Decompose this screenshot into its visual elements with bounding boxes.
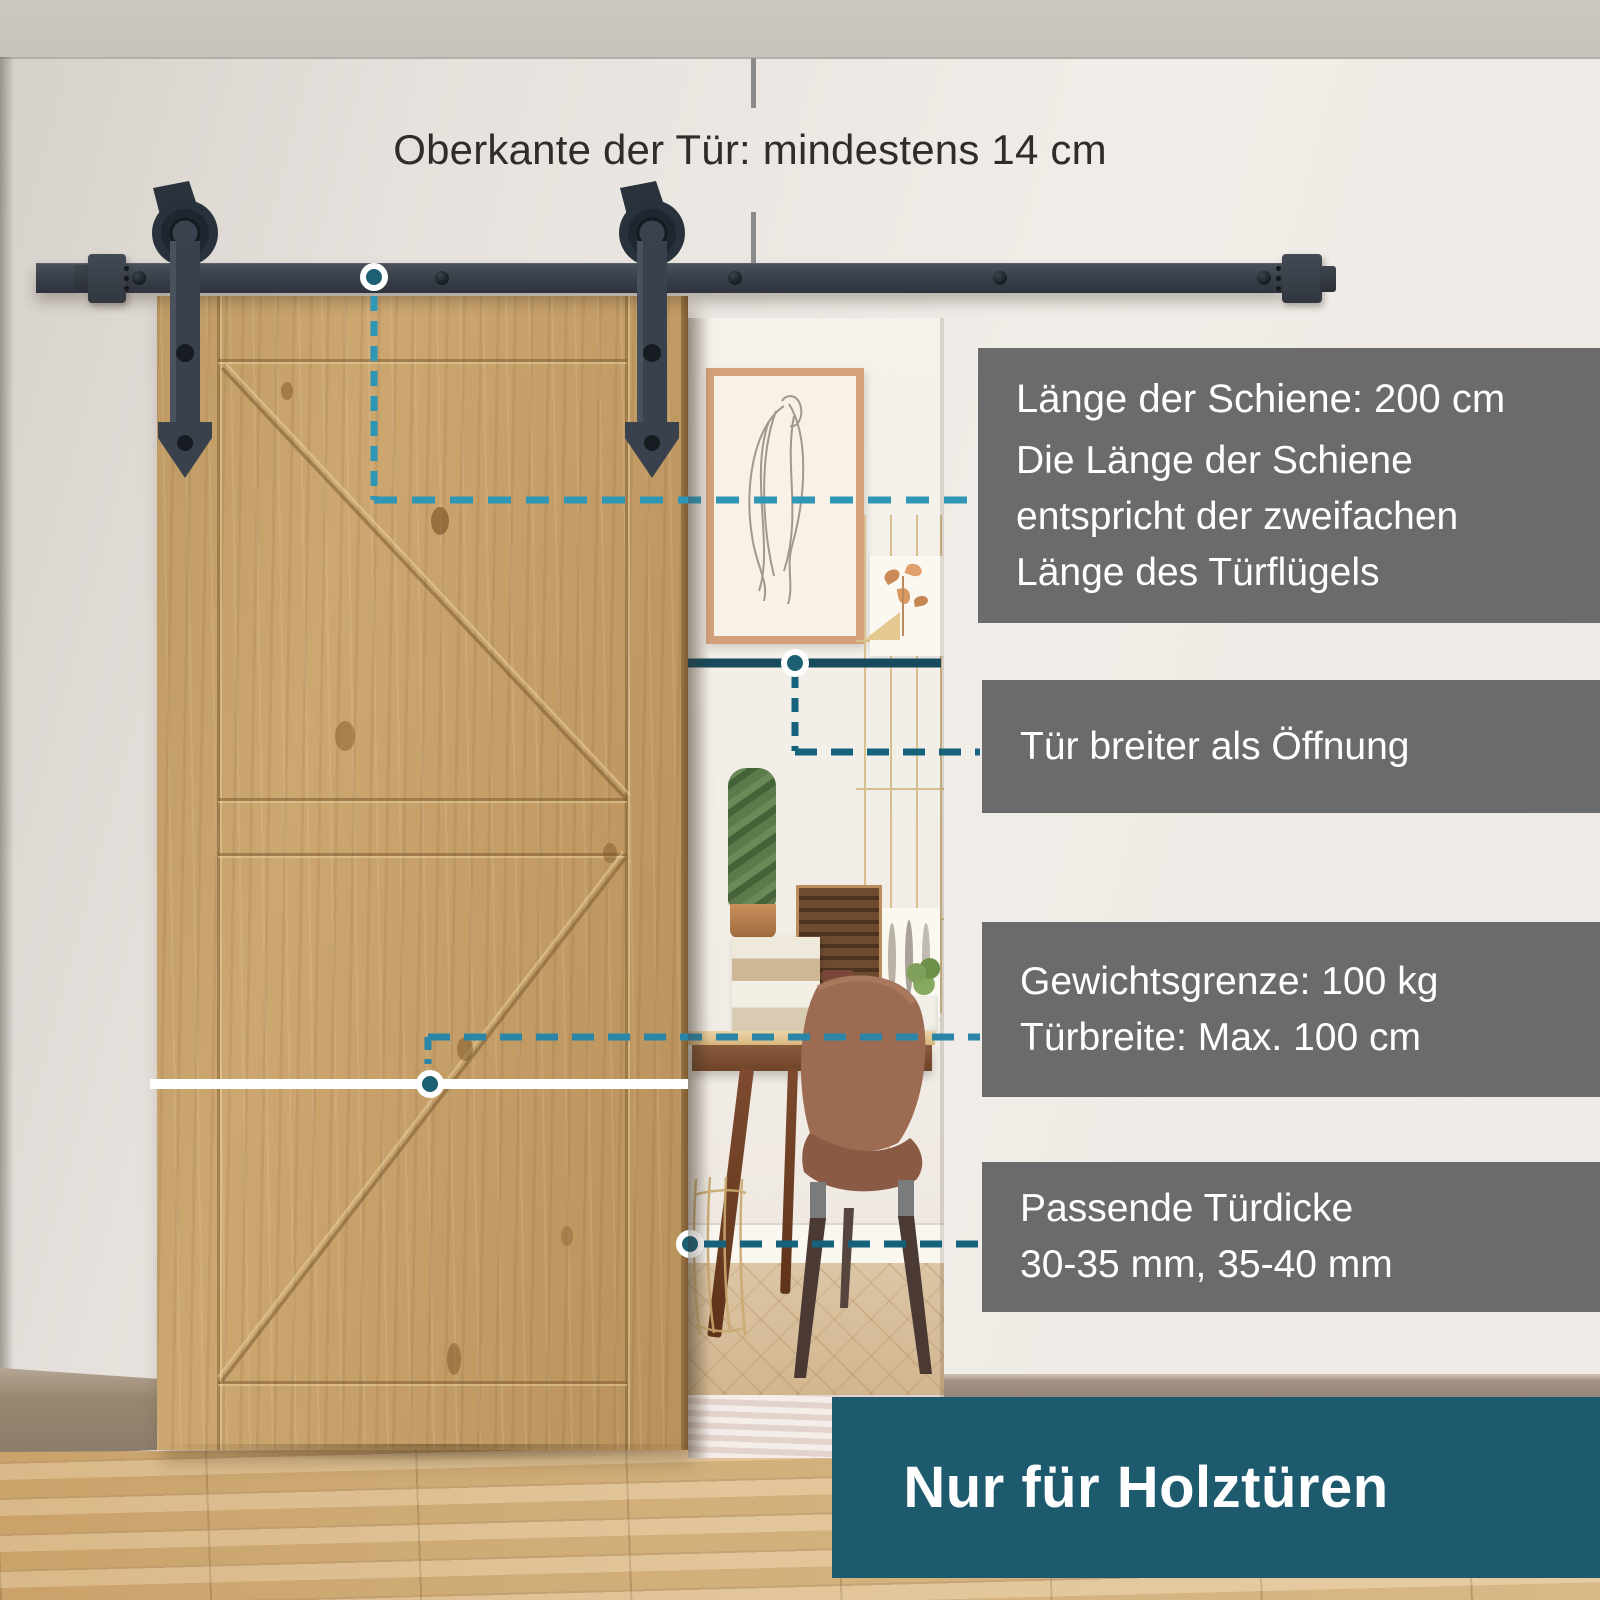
callout-line: Länge der Schiene: 200 cm [1016,371,1600,427]
marker-dot-opening [784,652,806,674]
callout-door-wider: Tür breiter als Öffnung [982,680,1600,813]
callout-weight-width: Gewichtsgrenze: 100 kg Türbreite: Max. 1… [982,922,1600,1097]
callout-line: Gewichtsgrenze: 100 kg [1020,954,1600,1010]
banner-text: Nur für Holztüren [903,1454,1388,1521]
product-infographic: Oberkante der Tür: mindestens 14 cm Läng… [0,0,1600,1600]
door-cast-shadow [688,318,710,1458]
marker-dot-rail [363,266,385,288]
callout-line: Tür breiter als Öffnung [1020,719,1600,775]
callout-line: Die Länge der Schiene [1016,433,1600,489]
callout-line: Türbreite: Max. 100 cm [1020,1010,1600,1066]
callout-line: 30-35 mm, 35-40 mm [1020,1237,1600,1293]
marker-dot-door-width [419,1073,441,1095]
callout-rail-length: Länge der Schiene: 200 cm Die Länge der … [978,348,1600,623]
callout-thickness: Passende Türdicke 30-35 mm, 35-40 mm [982,1162,1600,1312]
callout-line: entspricht der zweifachen [1016,489,1600,545]
banner-wood-doors-only: Nur für Holztüren [832,1397,1600,1578]
callout-line: Länge des Türflügels [1016,545,1600,601]
callout-line: Passende Türdicke [1020,1181,1600,1237]
